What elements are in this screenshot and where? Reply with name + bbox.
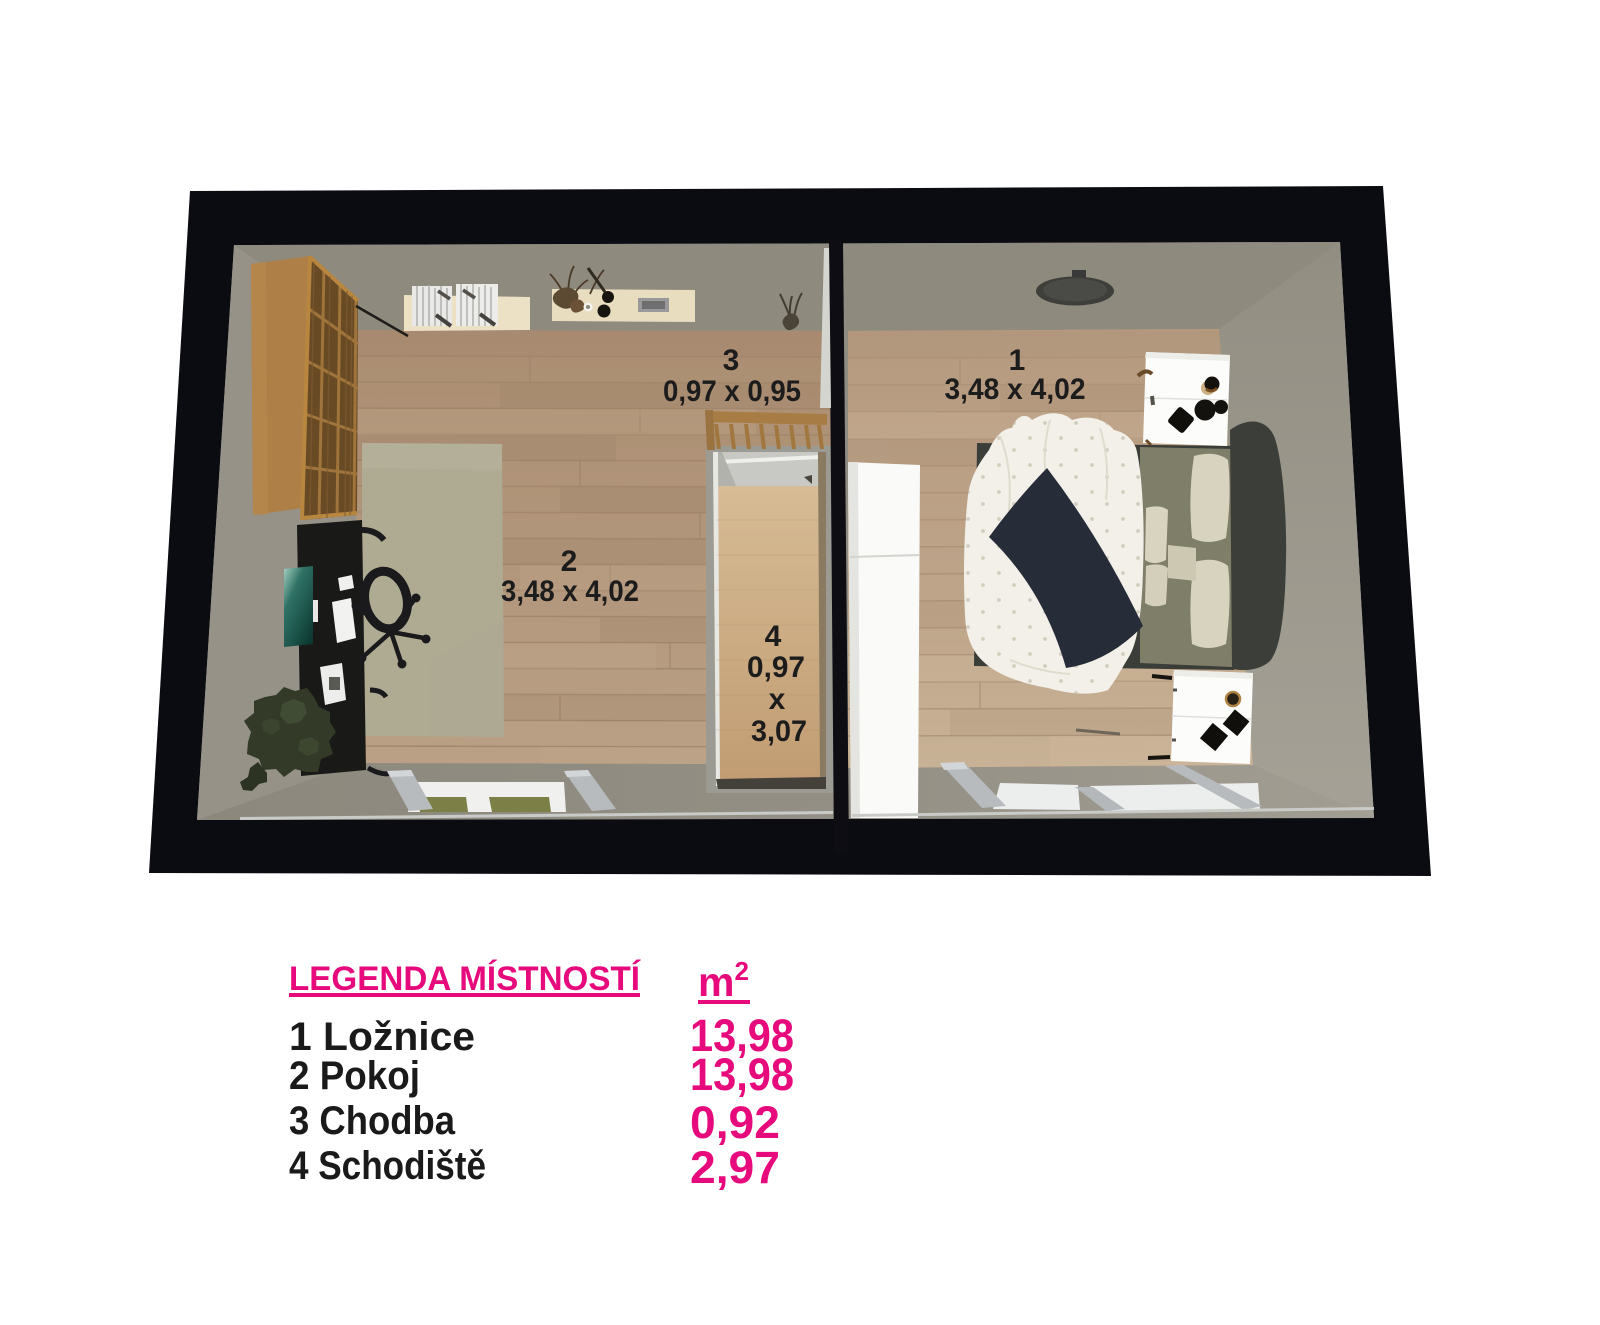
svg-text:2: 2 bbox=[561, 545, 578, 578]
svg-text:0,92: 0,92 bbox=[690, 1097, 780, 1148]
svg-text:2,97: 2,97 bbox=[690, 1142, 780, 1193]
svg-text:3,48 x 4,02: 3,48 x 4,02 bbox=[945, 373, 1086, 406]
svg-text:LEGENDA MÍSTNOSTÍ: LEGENDA MÍSTNOSTÍ bbox=[289, 958, 641, 998]
svg-text:13,98: 13,98 bbox=[690, 1049, 794, 1100]
svg-text:0,97: 0,97 bbox=[747, 651, 805, 684]
svg-text:1 Ložnice: 1 Ložnice bbox=[289, 1015, 475, 1059]
svg-text:3: 3 bbox=[723, 344, 740, 377]
svg-text:0,97 x 0,95: 0,97 x 0,95 bbox=[663, 375, 801, 408]
svg-text:x: x bbox=[769, 683, 786, 716]
svg-text:4: 4 bbox=[765, 620, 782, 653]
svg-text:4 Schodiště: 4 Schodiště bbox=[289, 1144, 486, 1188]
svg-text:3,48 x 4,02: 3,48 x 4,02 bbox=[501, 575, 639, 608]
svg-text:2 Pokoj: 2 Pokoj bbox=[289, 1054, 420, 1098]
svg-text:3,07: 3,07 bbox=[751, 715, 807, 748]
svg-text:3 Chodba: 3 Chodba bbox=[289, 1099, 456, 1143]
